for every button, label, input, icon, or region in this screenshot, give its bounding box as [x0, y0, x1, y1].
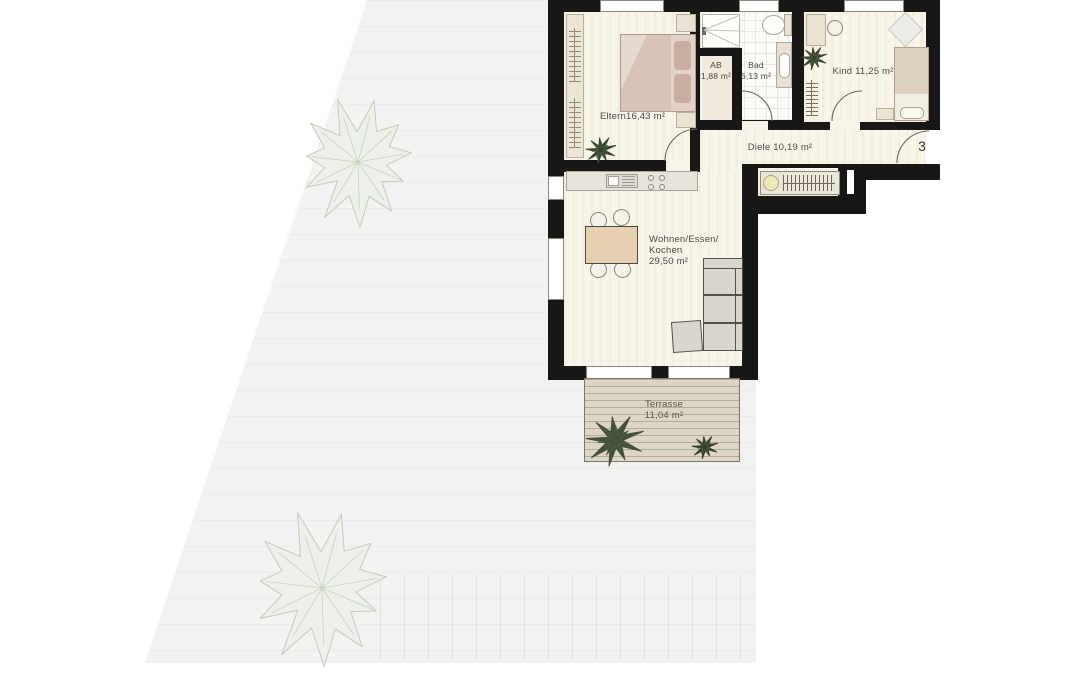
window-bad: [739, 0, 779, 12]
coat-hangers-icon: [783, 175, 835, 191]
room-area: 29,50 m²: [649, 256, 744, 267]
unit-number: 3: [912, 138, 932, 158]
toilet-tank: [784, 14, 792, 36]
door-opening-kind: [830, 121, 860, 130]
door-opening-bad: [742, 121, 768, 130]
wardrobe-rail-icon: [569, 98, 581, 148]
bed-blanket: [621, 35, 671, 111]
passage-floor: [700, 160, 742, 172]
niche-slot: [847, 170, 854, 194]
window-wohnen-left-1: [548, 176, 564, 200]
label-eltern: Eltern16,43 m²: [560, 111, 705, 122]
window-wohnen-left-2: [548, 238, 564, 300]
stool: [763, 175, 779, 191]
room-name: Terrasse: [604, 399, 724, 410]
sofa-seam: [704, 268, 742, 269]
window-eltern: [600, 0, 664, 12]
desk-chair: [827, 20, 843, 36]
sofa-seam: [704, 322, 742, 324]
room-area: 11,25 m²: [855, 66, 893, 77]
shelf: [876, 108, 894, 120]
wardrobe-rail-icon: [569, 28, 581, 82]
label-wohnen: Wohnen/Essen/Kochen29,50 m²: [649, 234, 744, 267]
cooktop-burner-icon: [648, 175, 654, 181]
single-bed-pillow: [900, 107, 924, 119]
cooktop-burner-icon: [659, 175, 665, 181]
label-kind: Kind 11,25 m²: [800, 66, 926, 77]
radiator-icon: [806, 80, 818, 116]
room-area: 16,43 m²: [626, 111, 665, 122]
room-area: 11,04 m²: [604, 410, 724, 421]
room-name: Kochen: [649, 245, 744, 256]
room-name: Kind: [832, 66, 852, 77]
window-kind: [844, 0, 904, 12]
shower: [702, 14, 740, 48]
wall-ab-top: [700, 48, 742, 56]
dining-table: [585, 226, 638, 264]
sofa: [703, 258, 743, 351]
bed-pillow: [674, 41, 691, 70]
nightstand: [676, 14, 696, 32]
floor-plan: Eltern16,43 m² AB1,88 m² Bad6,13 m² Kind…: [0, 0, 1080, 675]
cooktop-burner-icon: [648, 184, 654, 190]
toilet: [762, 15, 785, 35]
sofa-seam: [704, 294, 742, 296]
room-name: Bad: [726, 60, 786, 71]
room-area: 10,19 m²: [773, 142, 812, 153]
drainer-icon: [622, 176, 635, 186]
room-name: Wohnen/Essen/: [649, 234, 744, 245]
bed-pillow: [674, 74, 691, 103]
label-bad: Bad6,13 m²: [726, 60, 786, 82]
sofa-backrest-line: [735, 268, 736, 351]
ottoman: [671, 320, 703, 353]
label-terrasse: Terrasse11,04 m²: [604, 399, 724, 421]
desk: [806, 14, 826, 46]
room-name: Diele: [748, 142, 771, 153]
sink-basin: [608, 176, 619, 186]
wall-niche-bottom: [742, 196, 866, 214]
room-name: Eltern: [600, 111, 626, 122]
shower-head-icon: [702, 27, 706, 35]
room-area: 6,13 m²: [726, 71, 786, 82]
label-diele: Diele 10,19 m²: [697, 142, 863, 153]
grass-texture: [380, 575, 752, 661]
cooktop-burner-icon: [659, 184, 665, 190]
